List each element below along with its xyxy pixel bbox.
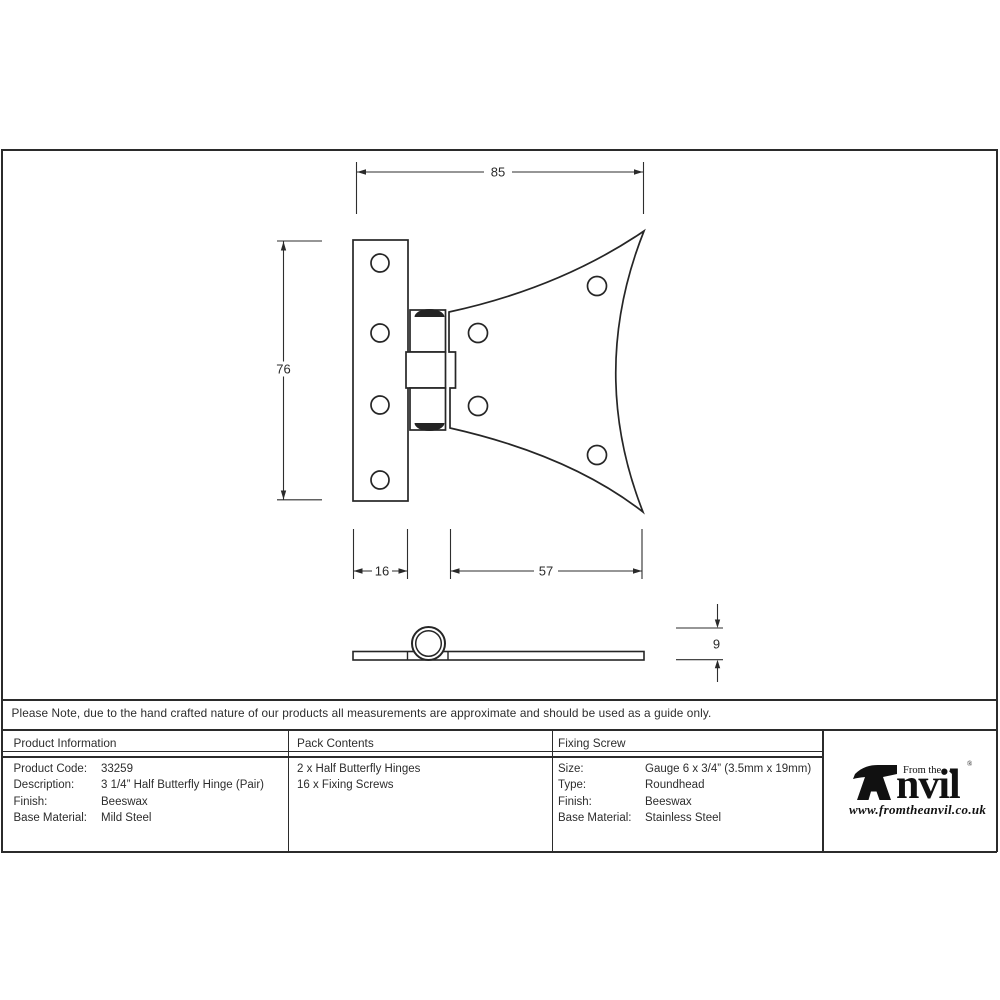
dim-label-57: 57	[539, 564, 553, 579]
header-pack-contents: Pack Contents	[297, 736, 374, 750]
hinge-front-view	[353, 231, 644, 512]
list-item: 2 x Half Butterfly Hinges	[297, 761, 420, 778]
note-top-rule	[1, 699, 997, 701]
screw-hole	[371, 396, 389, 414]
screw-hole	[371, 254, 389, 272]
hinge-knuckle-middle	[406, 352, 446, 388]
dim-label-9: 9	[713, 637, 720, 652]
logo-website-url: www.fromtheanvil.co.uk	[849, 802, 986, 818]
header-product-information: Product Information	[14, 736, 117, 750]
screw-hole	[371, 471, 389, 489]
table-row-value: Beeswax	[645, 794, 811, 811]
screw-hole	[588, 277, 607, 296]
product-info-labels: Product Code: Description: Finish: Base …	[14, 761, 88, 827]
hinge-left-plate	[353, 240, 408, 501]
side-view-barrel-outer	[412, 627, 445, 660]
frame-right-border	[996, 149, 998, 852]
dimension-width-85: 85	[357, 162, 644, 214]
table-row-label: Size:	[558, 761, 632, 778]
measurement-note: Please Note, due to the hand crafted nat…	[12, 706, 712, 720]
table-row-value: Roundhead	[645, 777, 811, 794]
header-rule-lower	[2, 756, 822, 758]
anvil-icon	[852, 762, 898, 802]
frame-top-border	[1, 149, 997, 151]
spec-sheet: 85 76 16	[0, 0, 1000, 1000]
pack-contents-items: 2 x Half Butterfly Hinges 16 x Fixing Sc…	[297, 761, 420, 794]
hinge-side-view	[353, 627, 644, 660]
dim-label-16: 16	[375, 564, 389, 579]
table-row-label: Base Material:	[558, 810, 632, 827]
column-separator-1	[288, 730, 290, 851]
table-row-label: Type:	[558, 777, 632, 794]
fixing-screw-values: Gauge 6 x 3/4” (3.5mm x 19mm) Roundhead …	[645, 761, 811, 827]
table-row-label: Base Material:	[14, 810, 88, 827]
dimension-thickness-9: 9	[676, 604, 723, 682]
side-view-plate	[353, 652, 644, 661]
fixing-screw-labels: Size: Type: Finish: Base Material:	[558, 761, 632, 827]
table-row-value: 3 1/4” Half Butterfly Hinge (Pair)	[101, 777, 264, 794]
screw-hole	[469, 324, 488, 343]
screw-hole	[588, 446, 607, 465]
dim-label-76: 76	[276, 362, 290, 377]
table-row-value: Gauge 6 x 3/4” (3.5mm x 19mm)	[645, 761, 811, 778]
brand-logo: From the ◆ nvil ® www.fromtheanvil.co.uk	[824, 730, 996, 851]
column-separator-2	[552, 730, 554, 851]
logo-wordmark: nvil	[896, 764, 960, 806]
dimension-height-76: 76	[270, 241, 323, 500]
dim-label-85: 85	[491, 165, 505, 180]
table-row-label: Product Code:	[14, 761, 88, 778]
dimension-leaf-16: 16	[354, 529, 408, 579]
hinge-wing-outline	[449, 231, 644, 512]
registered-trademark-icon: ®	[967, 760, 972, 768]
screw-hole	[371, 324, 389, 342]
header-fixing-screw: Fixing Screw	[558, 736, 626, 750]
table-row-value: Stainless Steel	[645, 810, 811, 827]
table-row-label: Description:	[14, 777, 88, 794]
table-row-value: Mild Steel	[101, 810, 264, 827]
table-row-label: Finish:	[558, 794, 632, 811]
list-item: 16 x Fixing Screws	[297, 777, 420, 794]
header-rule-upper	[2, 751, 822, 753]
table-row-label: Finish:	[14, 794, 88, 811]
screw-hole	[469, 397, 488, 416]
table-row-value: 33259	[101, 761, 264, 778]
product-info-values: 33259 3 1/4” Half Butterfly Hinge (Pair)…	[101, 761, 264, 827]
table-row-value: Beeswax	[101, 794, 264, 811]
frame-left-border	[1, 149, 3, 852]
dimension-wing-57: 57	[451, 529, 643, 579]
